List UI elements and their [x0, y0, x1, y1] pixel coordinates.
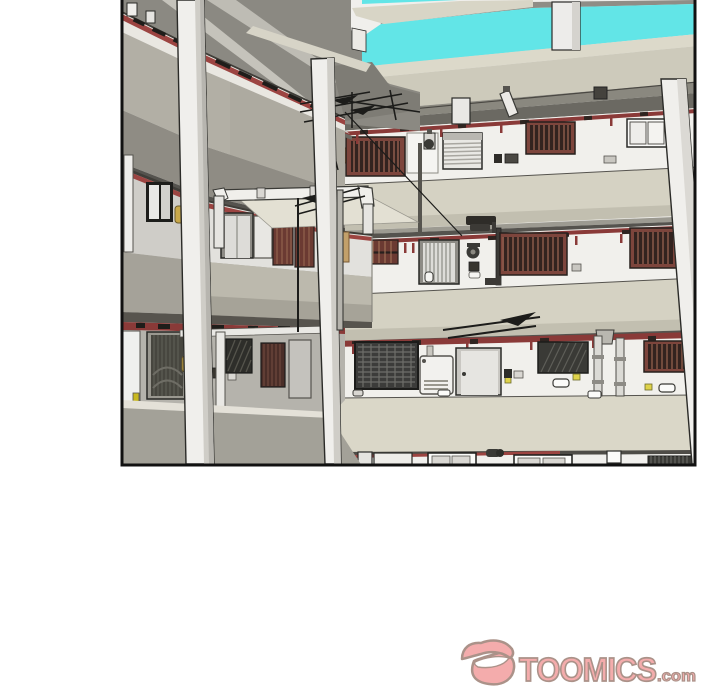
svg-text:TOOMICS: TOOMICS — [519, 651, 656, 688]
svg-text:.com: .com — [657, 668, 696, 685]
